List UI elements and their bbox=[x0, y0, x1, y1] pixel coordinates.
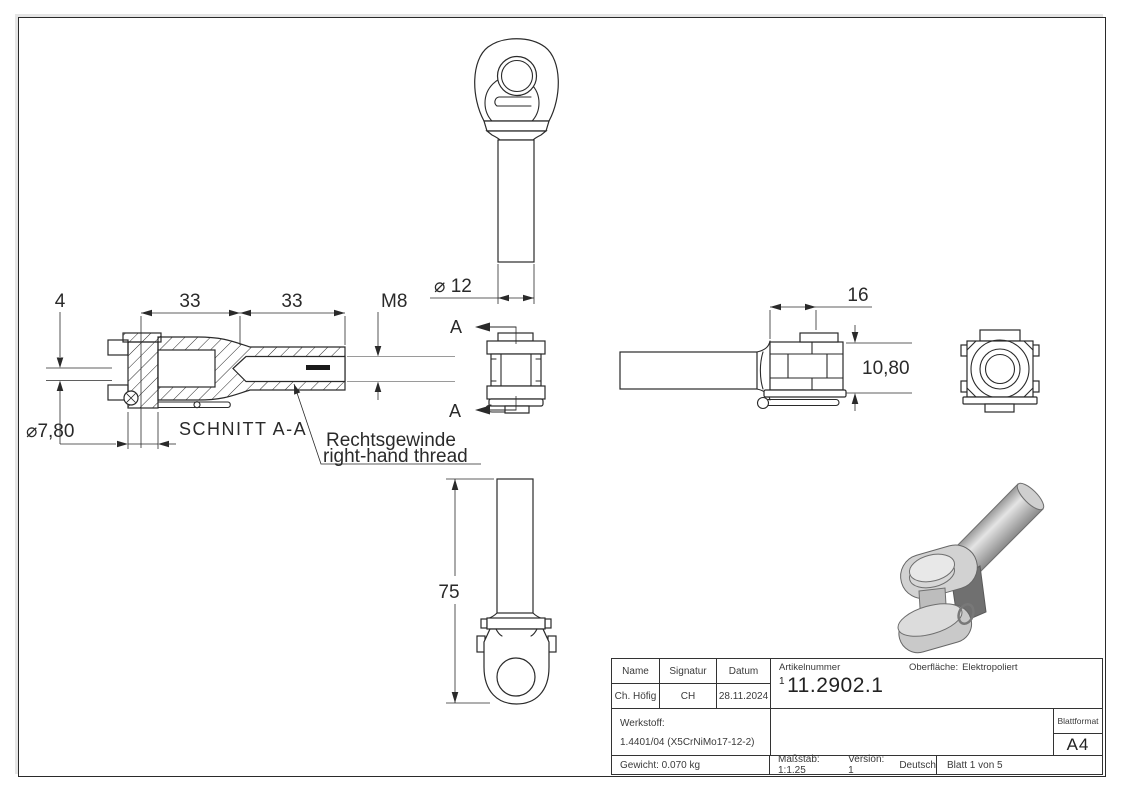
sheet-number: Blatt 1 von 5 bbox=[937, 756, 1102, 774]
date-value: 28.11.2024 bbox=[717, 684, 770, 708]
view-3d bbox=[894, 480, 1047, 658]
name-value: Ch. Höfig bbox=[612, 684, 659, 708]
thread-note-en: right-hand thread bbox=[323, 446, 468, 467]
signature-value: CH bbox=[660, 684, 716, 708]
pin-section bbox=[123, 333, 161, 342]
title-block: Name Ch. Höfig Signatur CH Datum 28.11.2… bbox=[611, 658, 1103, 775]
dim-m8: M8 bbox=[381, 291, 407, 312]
title-block-row-2: Werkstoff: 1.4401/04 (X5CrNiMo17-12-2) B… bbox=[612, 708, 1102, 755]
date-label: Datum bbox=[717, 659, 770, 684]
language-value: Deutsch bbox=[899, 760, 936, 771]
dim-1080: 10,80 bbox=[862, 358, 910, 379]
view-top: ⌀ 12 bbox=[430, 39, 558, 304]
shaft-bottom-view bbox=[497, 479, 533, 613]
dim-4: 4 bbox=[55, 291, 66, 312]
weight-value: Gewicht: 0.070 kg bbox=[612, 756, 769, 774]
section-label-bottom: A bbox=[449, 401, 461, 421]
view-section: 33 33 M8 4 ⌀7,80 bbox=[26, 291, 481, 467]
surface-value: Elektropoliert bbox=[962, 662, 1017, 673]
surface-label: Oberfläche: bbox=[909, 662, 958, 673]
material-label: Werkstoff: bbox=[620, 714, 770, 733]
view-bottom: 75 bbox=[438, 479, 556, 704]
material-value: 1.4401/04 (X5CrNiMo17-12-2) bbox=[620, 733, 770, 752]
article-number: 111.2902.1 bbox=[779, 674, 1102, 698]
section-arrow-top bbox=[475, 323, 490, 332]
dim-75: 75 bbox=[438, 582, 459, 603]
shaft-side-view bbox=[620, 352, 757, 389]
view-end bbox=[961, 330, 1039, 412]
name-label: Name bbox=[612, 659, 659, 684]
dim-dia780: ⌀7,80 bbox=[26, 421, 74, 442]
section-title: SCHNITT A-A bbox=[179, 419, 307, 439]
section-label-top: A bbox=[450, 317, 462, 337]
dim-16: 16 bbox=[847, 285, 868, 306]
sheet-format-label: Blattformat bbox=[1054, 709, 1102, 734]
sheet-format-value: A4 bbox=[1054, 734, 1102, 755]
dim-dia12: ⌀ 12 bbox=[434, 276, 472, 297]
shaft-top-view bbox=[498, 140, 534, 262]
view-side: 16 10,80 bbox=[620, 285, 912, 411]
dim-33-left: 33 bbox=[179, 291, 200, 312]
title-block-empty-cell bbox=[771, 709, 1054, 755]
version-value: Version: 1 bbox=[848, 754, 884, 776]
title-block-row-1: Name Ch. Höfig Signatur CH Datum 28.11.2… bbox=[612, 659, 1102, 708]
signature-label: Signatur bbox=[660, 659, 716, 684]
section-arrow-bottom bbox=[475, 406, 490, 415]
title-block-row-3: Gewicht: 0.070 kg Maßstab: 1:1.25 Versio… bbox=[612, 755, 1102, 774]
drawing-sheet: ⌀ 12 33 33 M bbox=[0, 0, 1123, 794]
eye-circle bbox=[497, 658, 535, 696]
view-front: A A bbox=[449, 317, 545, 421]
article-number-prefix: 1 bbox=[779, 676, 785, 687]
pin-head-outline bbox=[498, 57, 537, 96]
fork-head-side bbox=[770, 342, 843, 390]
scale-value: Maßstab: 1:1.25 bbox=[778, 754, 833, 776]
dim-33-right: 33 bbox=[281, 291, 302, 312]
